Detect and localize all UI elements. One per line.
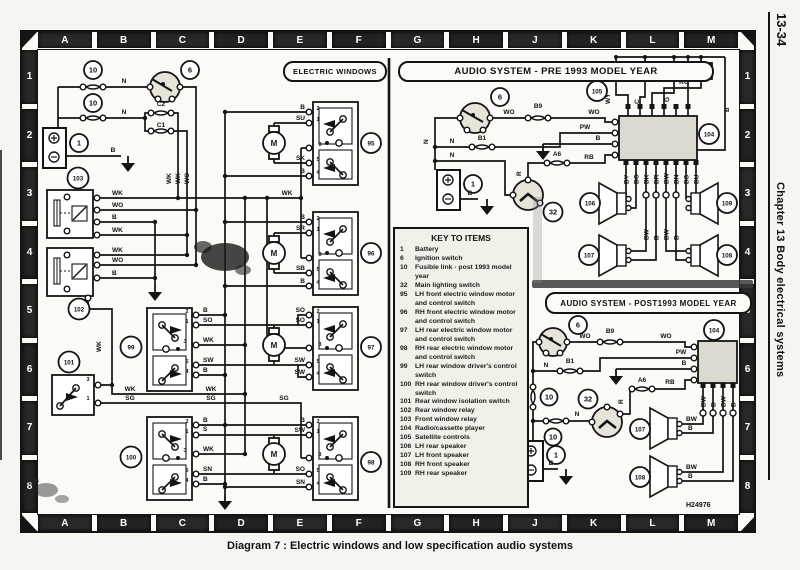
section-header-audio-post-1993: AUDIO SYSTEM - POST1993 MODEL YEAR bbox=[545, 292, 752, 314]
fuse-icon bbox=[597, 339, 623, 345]
terminal-number: 2 bbox=[185, 419, 188, 425]
key-item-number: 10 bbox=[400, 264, 415, 282]
fuse-icon bbox=[629, 386, 655, 392]
badge-label: 106 bbox=[585, 200, 596, 207]
badge-label: 107 bbox=[635, 426, 646, 433]
key-item: 32Main lighting switch bbox=[400, 282, 522, 291]
key-item: 97LH rear electric window motor and cont… bbox=[400, 327, 522, 345]
fuse-icon bbox=[525, 115, 551, 121]
key-item-number: 107 bbox=[400, 452, 415, 461]
battery-symbol bbox=[43, 128, 66, 168]
ground-icon bbox=[148, 285, 162, 301]
lighting-switch-symbol bbox=[589, 404, 623, 437]
ground-icon bbox=[609, 369, 623, 385]
key-item-number: 108 bbox=[400, 461, 415, 470]
badge-label: 108 bbox=[722, 252, 733, 259]
key-item-label: LH front speaker bbox=[415, 452, 522, 461]
speaker-icon-108 bbox=[686, 235, 718, 276]
key-item-label: LH front electric window motor and contr… bbox=[415, 291, 522, 309]
terminal-number: 1 bbox=[316, 319, 319, 325]
radio-cassette-symbol bbox=[612, 104, 698, 165]
wire-label: WK bbox=[112, 247, 123, 254]
section-title: AUDIO SYSTEM - PRE 1993 MODEL YEAR bbox=[454, 66, 657, 77]
wire-label: B bbox=[112, 270, 117, 277]
key-item-number: 100 bbox=[400, 381, 415, 399]
badge-label: 100 bbox=[126, 454, 137, 461]
speaker-icon-109 bbox=[686, 183, 718, 224]
badge-label: 32 bbox=[549, 208, 557, 217]
key-item-number: 97 bbox=[400, 327, 415, 345]
key-item-number: 1 bbox=[400, 246, 415, 255]
wire-label: N bbox=[450, 138, 455, 145]
wire-label: PW bbox=[580, 124, 591, 131]
key-item-label: Main lighting switch bbox=[415, 282, 522, 291]
wire-label: SO bbox=[296, 307, 305, 314]
wire-label: WK bbox=[112, 227, 123, 234]
wire-label: WK bbox=[282, 190, 293, 197]
wire-label: WO bbox=[588, 109, 599, 116]
wire-label: C bbox=[634, 99, 641, 104]
badge-label: 1 bbox=[554, 451, 558, 460]
wire-label: B bbox=[688, 473, 693, 480]
terminal-number: 1 bbox=[316, 117, 319, 123]
terminal-number: 3 bbox=[318, 142, 321, 148]
badge-label: 102 bbox=[74, 306, 85, 313]
terminal-number: 3 bbox=[86, 377, 89, 383]
key-item: 105Satellite controls bbox=[400, 434, 522, 443]
key-item-label: Satellite controls bbox=[415, 434, 522, 443]
fusible-link-icon bbox=[530, 384, 536, 410]
wire-label: S bbox=[203, 426, 208, 433]
badge-label: 6 bbox=[498, 93, 502, 102]
wire-label: N bbox=[575, 411, 580, 418]
fuse-icon bbox=[557, 368, 583, 374]
wire-label: WO bbox=[579, 333, 590, 340]
ground-icon bbox=[121, 156, 135, 172]
wire-label: BY bbox=[624, 174, 631, 184]
wire-label: B9 bbox=[534, 103, 543, 110]
wire-label: G bbox=[664, 97, 671, 102]
key-item-label: Fusible link - post 1993 model year bbox=[415, 264, 522, 282]
terminal-number: 5 bbox=[316, 359, 319, 365]
key-item: 100RH rear window driver's control switc… bbox=[400, 381, 522, 399]
wire-label: WK bbox=[203, 337, 214, 344]
key-item: 109RH rear speaker bbox=[400, 470, 522, 479]
wire-label: B bbox=[596, 135, 601, 142]
wire-label: N bbox=[450, 152, 455, 159]
terminal-number: 3 bbox=[318, 252, 321, 258]
ignition-switch-symbol bbox=[457, 103, 493, 133]
wire-label: WK bbox=[112, 190, 123, 197]
wire-label: SO bbox=[203, 317, 212, 324]
wire-label: SB bbox=[296, 265, 305, 272]
terminal-number: 1 bbox=[316, 429, 319, 435]
key-item-number: 109 bbox=[400, 470, 415, 479]
terminal-number: 2 bbox=[316, 309, 319, 315]
wire-label: B9 bbox=[606, 328, 615, 335]
wire-label: B1 bbox=[478, 135, 487, 142]
key-item: 101Rear window isolation switch bbox=[400, 398, 522, 407]
ground-icon bbox=[480, 199, 494, 215]
terminal-number: 1 bbox=[316, 227, 319, 233]
wire-label: B bbox=[468, 190, 473, 197]
wire-label: SK bbox=[296, 155, 305, 162]
key-item-label: RH rear speaker bbox=[415, 470, 522, 479]
fuse-icon bbox=[544, 160, 570, 166]
connector-pins bbox=[700, 410, 736, 416]
badge-label: 96 bbox=[368, 250, 375, 257]
wire-label: R bbox=[618, 399, 625, 404]
wire-label: SO bbox=[296, 317, 305, 324]
wire-label: WK bbox=[125, 386, 136, 393]
key-item-label: Battery bbox=[415, 246, 522, 255]
wire-label: N bbox=[122, 78, 127, 85]
terminal-number: 1 bbox=[86, 396, 89, 402]
terminal-number: 5 bbox=[316, 157, 319, 163]
wire-label: WK bbox=[96, 341, 103, 352]
motor-label: M bbox=[271, 341, 278, 350]
wire-label: SO bbox=[296, 466, 305, 473]
badge-label: 32 bbox=[584, 395, 592, 404]
wire-label: WO bbox=[112, 257, 123, 264]
badge-label: 1 bbox=[77, 139, 81, 148]
key-item-label: RH rear electric window motor and contro… bbox=[415, 345, 522, 363]
section-header-electric-windows: ELECTRIC WINDOWS bbox=[283, 61, 387, 82]
badge-label: 10 bbox=[89, 66, 97, 75]
key-item-label: Rear window isolation switch bbox=[415, 398, 522, 407]
key-item-number: 103 bbox=[400, 416, 415, 425]
motor-label: M bbox=[271, 450, 278, 459]
wire-label: WY bbox=[605, 93, 612, 104]
key-item: 108RH front speaker bbox=[400, 461, 522, 470]
wire-label: SN bbox=[203, 466, 212, 473]
key-item-number: 101 bbox=[400, 398, 415, 407]
terminal-number: 3 bbox=[183, 339, 186, 345]
badge-label: 10 bbox=[545, 393, 553, 402]
badge-label: 109 bbox=[722, 200, 733, 207]
wire-label: B bbox=[711, 402, 718, 407]
key-item: 107LH front speaker bbox=[400, 452, 522, 461]
key-item: 1Battery bbox=[400, 246, 522, 255]
speaker-icon-108 bbox=[650, 456, 682, 497]
wire-label: RB bbox=[665, 379, 675, 386]
wire-label: BW bbox=[686, 464, 698, 471]
wire-label: SN bbox=[296, 479, 305, 486]
wire-label: PW bbox=[676, 349, 687, 356]
key-to-items-panel: KEY TO ITEMS 1Battery 6Ignition switch 1… bbox=[393, 227, 529, 508]
badge-label: 104 bbox=[704, 131, 715, 138]
wire-label: BW bbox=[664, 172, 671, 184]
wire-label: WK bbox=[206, 386, 217, 393]
key-item: 103Front window relay bbox=[400, 416, 522, 425]
wire-label: N bbox=[122, 109, 127, 116]
wire-label: B bbox=[688, 425, 693, 432]
wire-label: BU bbox=[694, 174, 701, 184]
badge-label: 99 bbox=[128, 344, 135, 351]
wire-label: BW bbox=[721, 395, 728, 407]
section-title: ELECTRIC WINDOWS bbox=[293, 67, 377, 76]
key-item-label: RH front electric window motor and contr… bbox=[415, 309, 522, 327]
key-item-number: 96 bbox=[400, 309, 415, 327]
window-motor-unit-97 bbox=[313, 307, 358, 390]
key-item-number: 32 bbox=[400, 282, 415, 291]
wire-label: RB bbox=[584, 154, 594, 161]
badge-label: 95 bbox=[368, 140, 375, 147]
wire-label: SR bbox=[296, 225, 305, 232]
key-item-label: LH rear speaker bbox=[415, 443, 522, 452]
key-item-label: RH rear window driver's control switch bbox=[415, 381, 522, 399]
wire-label: BO bbox=[634, 174, 641, 184]
wire-label: B bbox=[674, 235, 681, 240]
wire-label: A6 bbox=[638, 377, 647, 384]
key-item-label: LH rear window driver's control switch bbox=[415, 363, 522, 381]
terminal-number: 5 bbox=[185, 468, 188, 474]
radio-cassette-symbol bbox=[691, 341, 737, 388]
fuse-icon bbox=[469, 144, 495, 150]
wire-label: C2 bbox=[157, 101, 166, 108]
wire-label: B bbox=[112, 214, 117, 221]
key-item: 96RH front electric window motor and con… bbox=[400, 309, 522, 327]
ground-icon bbox=[559, 469, 573, 485]
drawing-reference: H24976 bbox=[686, 502, 711, 509]
wire-label: SG bbox=[125, 395, 134, 402]
motor-label: M bbox=[271, 249, 278, 258]
badge-label: 101 bbox=[64, 359, 75, 366]
terminal-number: 2 bbox=[316, 419, 319, 425]
badge-label: 6 bbox=[188, 66, 192, 75]
wire-label: BS bbox=[684, 174, 691, 184]
badge-label: 6 bbox=[576, 321, 580, 330]
section-header-audio-pre-1993: AUDIO SYSTEM - PRE 1993 MODEL YEAR bbox=[398, 61, 714, 82]
key-item: 95LH front electric window motor and con… bbox=[400, 291, 522, 309]
badge-label: 97 bbox=[368, 344, 375, 351]
key-title: KEY TO ITEMS bbox=[400, 233, 522, 243]
wire-label: SU bbox=[296, 115, 305, 122]
wire-label: N bbox=[544, 362, 549, 369]
key-item-label: Front window relay bbox=[415, 416, 522, 425]
connector-pins bbox=[643, 192, 679, 198]
terminal-number: 2 bbox=[316, 106, 319, 112]
badge-label: 103 bbox=[73, 175, 84, 182]
terminal-number: 1 bbox=[185, 319, 188, 325]
wire-label: B bbox=[203, 476, 208, 483]
wire-label: WK bbox=[166, 173, 173, 184]
electric-windows-circuit: M M M M bbox=[43, 61, 381, 510]
wire-label: BN bbox=[674, 174, 681, 184]
wire-label: R bbox=[516, 171, 523, 176]
badge-label: 10 bbox=[549, 433, 557, 442]
wire-label: WK bbox=[203, 446, 214, 453]
wire-label: B bbox=[300, 214, 305, 221]
wire-label: B bbox=[300, 168, 305, 175]
key-item-number: 106 bbox=[400, 443, 415, 452]
key-item-number: 104 bbox=[400, 425, 415, 434]
wire-label: SG bbox=[206, 395, 215, 402]
key-item-number: 105 bbox=[400, 434, 415, 443]
key-item-label: Ignition switch bbox=[415, 255, 522, 264]
wire-label: WO bbox=[184, 173, 191, 184]
badge-label: 108 bbox=[635, 474, 646, 481]
wire-label: B bbox=[731, 402, 738, 407]
key-item-number: 102 bbox=[400, 407, 415, 416]
ignition-switch-symbol bbox=[536, 328, 570, 356]
wire-label: SW bbox=[295, 369, 306, 376]
badge-label: 104 bbox=[709, 327, 720, 334]
wire-label: WO bbox=[112, 202, 123, 209]
ignition-switch-symbol bbox=[147, 72, 183, 102]
key-item-number: 98 bbox=[400, 345, 415, 363]
key-item-number: 95 bbox=[400, 291, 415, 309]
terminal-number: 5 bbox=[316, 267, 319, 273]
terminal-number: 3 bbox=[318, 342, 321, 348]
wire-label: WO bbox=[660, 333, 671, 340]
key-item-label: Rear window relay bbox=[415, 407, 522, 416]
wire-label: N bbox=[423, 139, 430, 144]
key-item-number: 99 bbox=[400, 363, 415, 381]
wire-label: SW bbox=[295, 357, 306, 364]
window-motor-unit-98 bbox=[313, 417, 358, 500]
wire-label: BW bbox=[686, 416, 698, 423]
terminal-number: 1 bbox=[185, 429, 188, 435]
wire-label: WK bbox=[175, 173, 182, 184]
wire-label: B1 bbox=[566, 358, 575, 365]
badge-label: 105 bbox=[592, 88, 603, 95]
terminal-number: 2 bbox=[316, 216, 319, 222]
key-item-label: RH front speaker bbox=[415, 461, 522, 470]
key-item-number: 6 bbox=[400, 255, 415, 264]
key-item: 98RH rear electric window motor and cont… bbox=[400, 345, 522, 363]
terminal-number: 5 bbox=[185, 359, 188, 365]
key-item: 10Fusible link - post 1993 model year bbox=[400, 264, 522, 282]
wire-label: B bbox=[300, 104, 305, 111]
badge-label: 10 bbox=[89, 99, 97, 108]
motor-label: M bbox=[271, 139, 278, 148]
rear-window-relay-symbol bbox=[47, 248, 93, 296]
speaker-icon-107 bbox=[650, 408, 682, 449]
key-item: 6Ignition switch bbox=[400, 255, 522, 264]
ground-icon bbox=[218, 494, 232, 510]
badge-label: 107 bbox=[584, 252, 595, 259]
manual-page: M M M M bbox=[0, 0, 800, 570]
terminal-pins bbox=[85, 109, 312, 490]
wire-label: BW bbox=[644, 228, 651, 240]
terminal-number: 5 bbox=[316, 468, 319, 474]
wire-label: WO bbox=[503, 109, 514, 116]
key-item: 99LH rear window driver's control switch bbox=[400, 363, 522, 381]
wire-label: B bbox=[654, 235, 661, 240]
wire-label: B bbox=[203, 417, 208, 424]
section-title: AUDIO SYSTEM - POST1993 MODEL YEAR bbox=[560, 299, 736, 308]
wire-label: B bbox=[203, 307, 208, 314]
wire-label: C1 bbox=[157, 122, 166, 129]
battery-symbol bbox=[437, 170, 460, 210]
wire-label: SW bbox=[203, 357, 214, 364]
wire-label: SG bbox=[279, 395, 288, 402]
speaker-icon-107 bbox=[599, 235, 631, 276]
wire-label: B bbox=[682, 360, 687, 367]
key-item-label: LH rear electric window motor and contro… bbox=[415, 327, 522, 345]
wire-label: B bbox=[724, 107, 731, 112]
terminal-number: 3 bbox=[318, 452, 321, 458]
key-item-label: Radio/cassette player bbox=[415, 425, 522, 434]
wire-label: SW bbox=[295, 427, 306, 434]
key-item: 106LH rear speaker bbox=[400, 443, 522, 452]
key-item: 104Radio/cassette player bbox=[400, 425, 522, 434]
front-window-relay-symbol bbox=[47, 190, 93, 238]
wire-label: BW bbox=[664, 228, 671, 240]
key-item: 102Rear window relay bbox=[400, 407, 522, 416]
terminal-number: 3 bbox=[183, 448, 186, 454]
wire-label: B bbox=[203, 367, 208, 374]
wire-label: BR bbox=[654, 174, 661, 184]
badge-label: 98 bbox=[368, 459, 375, 466]
wire-label: BK bbox=[644, 174, 651, 184]
wire-label: B bbox=[300, 417, 305, 424]
wire-label: B bbox=[549, 460, 554, 467]
wire-label: B bbox=[300, 278, 305, 285]
terminal-number: 2 bbox=[185, 309, 188, 315]
fusible-link-icon bbox=[543, 418, 569, 424]
wire-label: A6 bbox=[553, 151, 562, 158]
wire-label: B bbox=[111, 147, 116, 154]
audio-post-circuit: 6 104 32 10 10 1 107 108 WO B9 WO N N B1… bbox=[520, 316, 738, 497]
badge-label: 1 bbox=[471, 180, 475, 189]
wire-label: BW bbox=[701, 395, 708, 407]
